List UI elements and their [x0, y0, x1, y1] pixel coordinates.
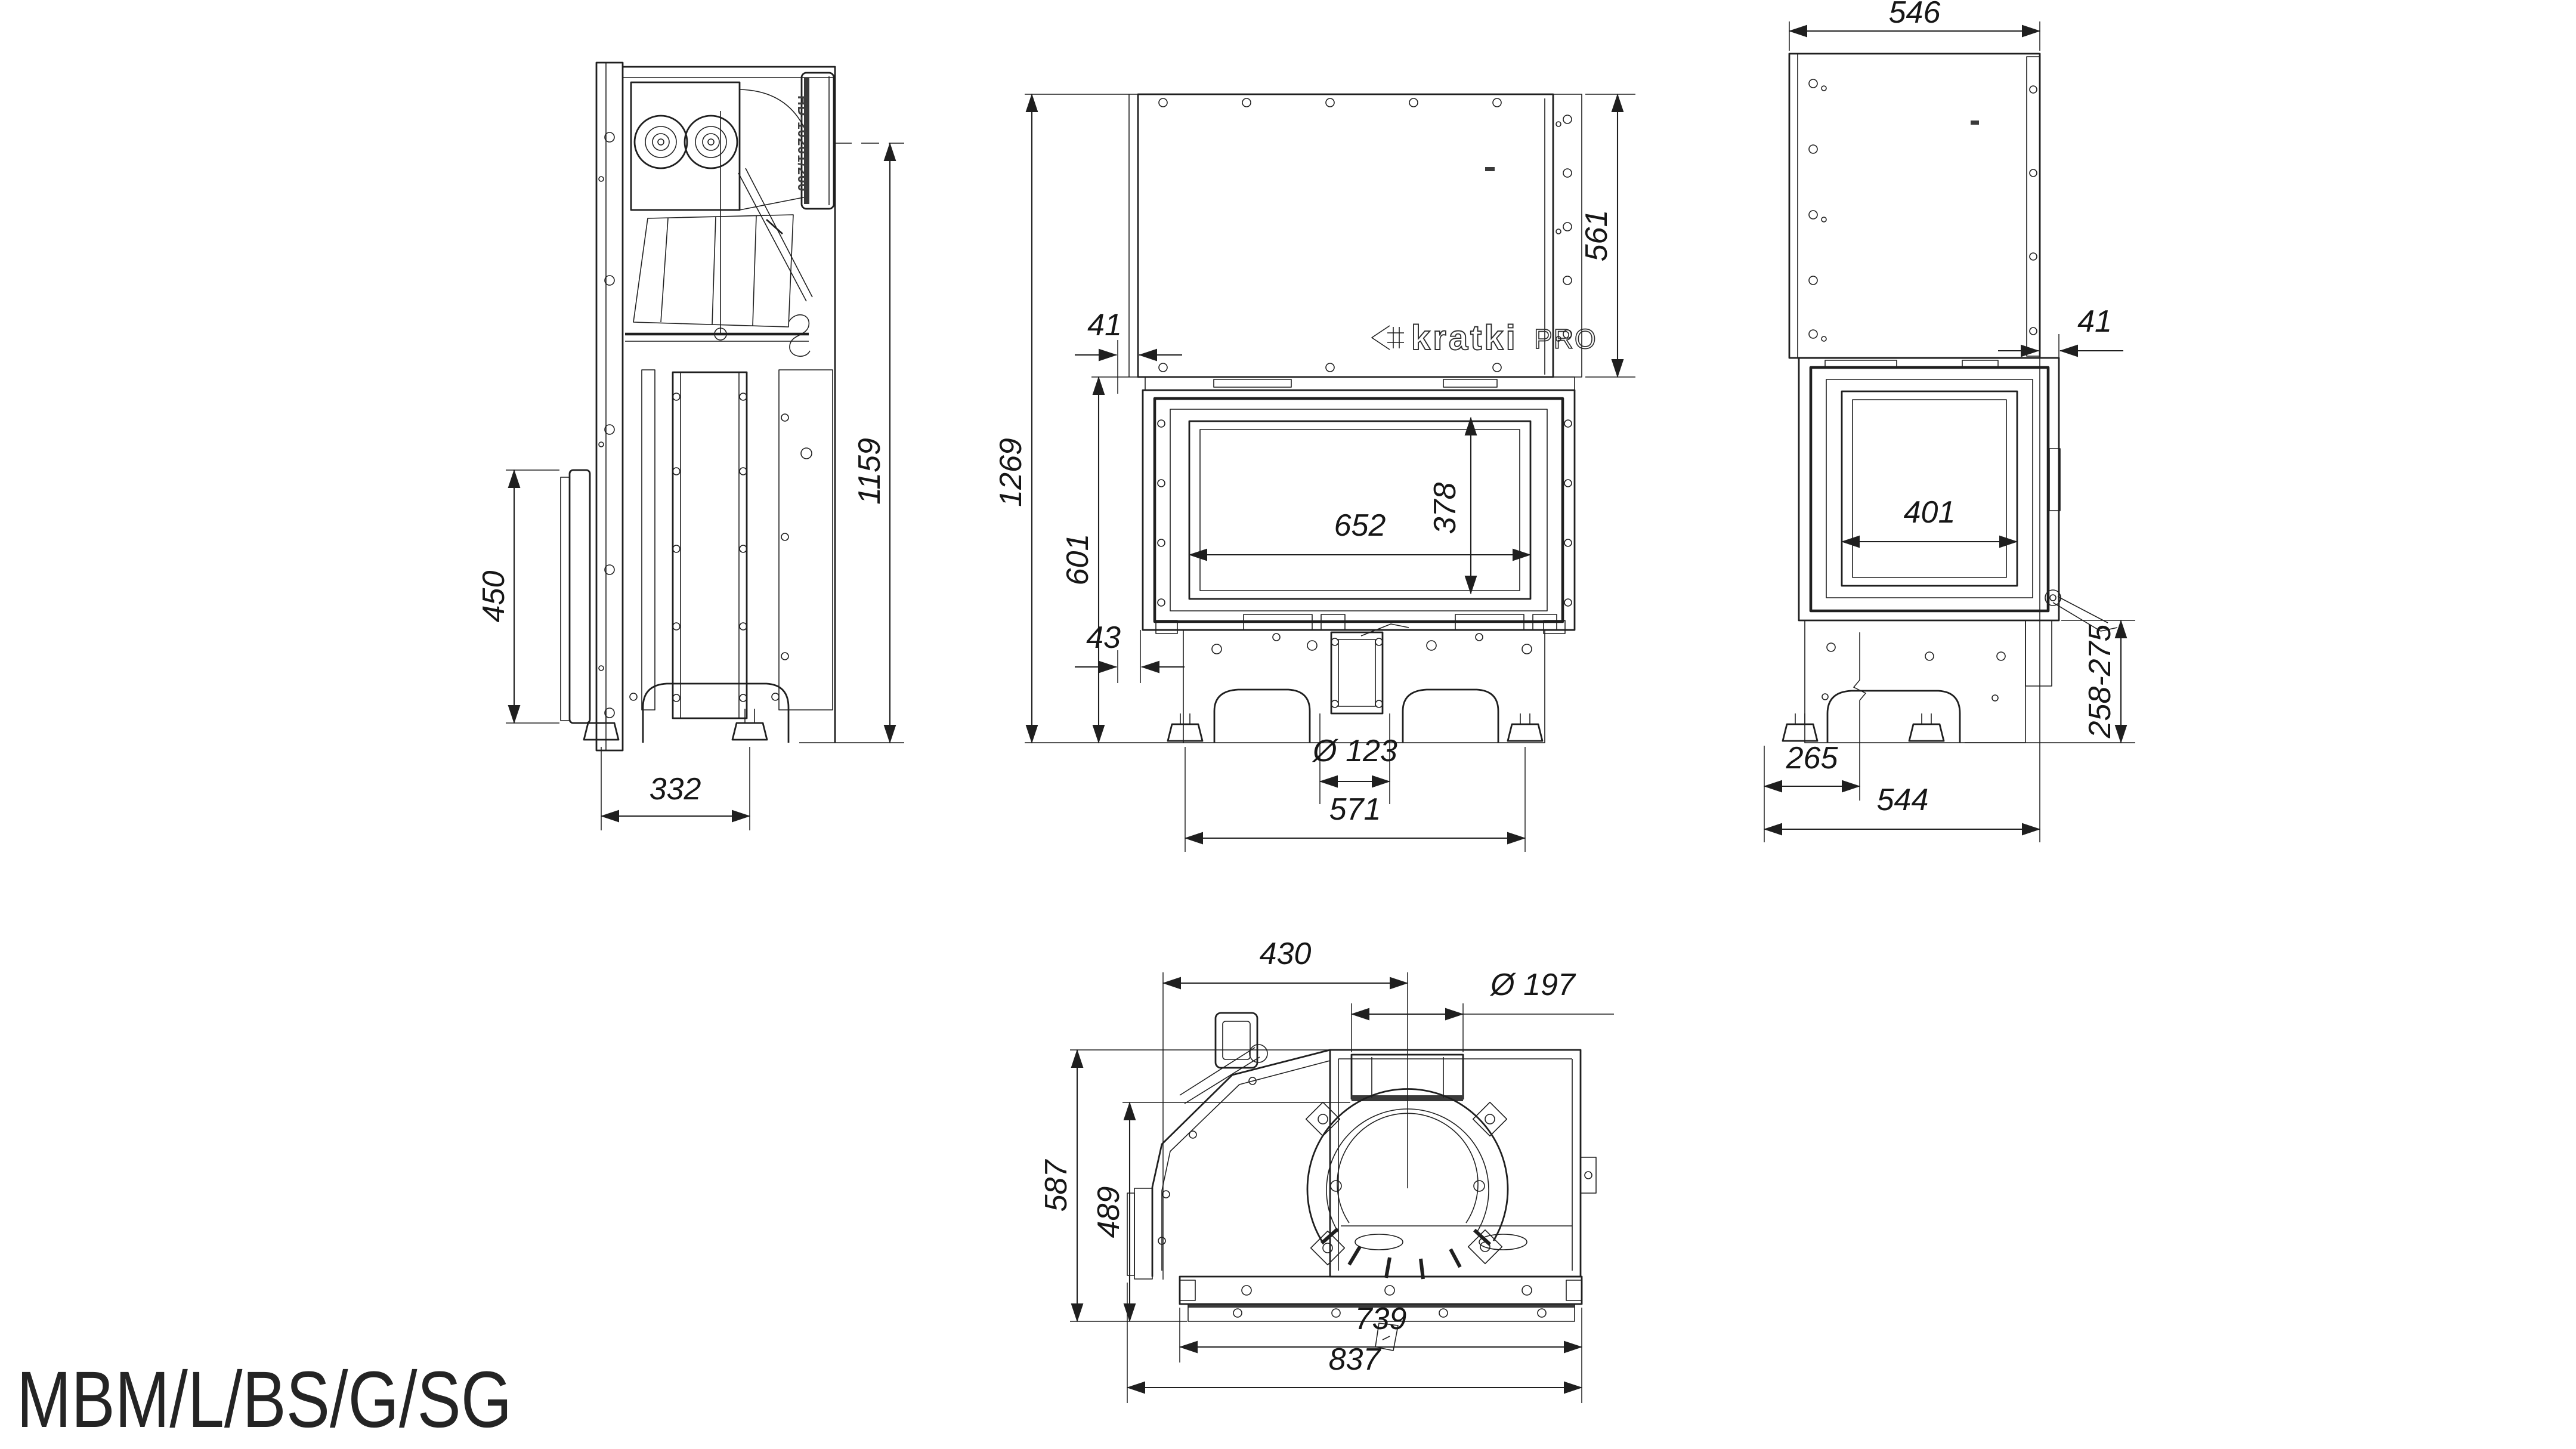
dim-front-overall-height: 1269 [994, 438, 1028, 507]
view-front: kratki PRO 652 378 [994, 94, 1635, 852]
logo-suffix-text: PRO [1534, 323, 1597, 354]
dim-top-overall-width: 837 [1329, 1342, 1382, 1377]
dim-right-base-height-range: 258-275 [2083, 624, 2117, 739]
dim-front-left-offset-bottom: 43 [1086, 620, 1121, 655]
dim-front-body-height: 601 [1060, 534, 1095, 586]
kratki-arrow-icon [1372, 326, 1404, 350]
dim-front-upper-panel-height: 561 [1579, 210, 1614, 262]
dim-front-left-offset-top: 41 [1087, 308, 1122, 342]
model-title: MBM/L/BS/G/SG [17, 1355, 512, 1444]
dim-top-flue-diameter: Ø 197 [1489, 968, 1576, 1002]
dim-top-flue-center-from-left: 430 [1260, 937, 1312, 971]
dim-front-glass-height: 378 [1428, 483, 1462, 535]
dim-top-front-bar-width: 739 [1355, 1302, 1407, 1336]
part-number-label: HD-10201/200 [795, 95, 811, 192]
dim-top-overall-depth: 587 [1039, 1159, 1074, 1212]
dim-right-depth-top: 546 [1889, 0, 1941, 30]
view-left-side: HD-10201/200 450 [477, 63, 904, 830]
dim-front-glass-width: 652 [1334, 508, 1386, 543]
view-top-plan: 430 Ø 197 587 489 739 837 [1039, 937, 1614, 1403]
dim-front-feet-spacing: 571 [1329, 792, 1381, 827]
dim-left-door-height: 450 [477, 571, 511, 623]
dim-right-front-offset-top: 41 [2077, 304, 2112, 339]
dim-top-inner-depth: 489 [1091, 1187, 1126, 1238]
dim-right-glass-width: 401 [1904, 495, 1956, 530]
dim-left-overall-height: 1159 [852, 438, 887, 505]
dim-front-flue-pipe-diameter: Ø 123 [1312, 734, 1397, 768]
fireplace-dimension-drawing: HD-10201/200 450 [0, 0, 2576, 1449]
dim-right-center-offset: 265 [1786, 741, 1839, 776]
dim-left-feet-spacing: 332 [650, 772, 701, 807]
logo-brand-text: kratki [1411, 319, 1518, 357]
technical-drawing-page: HD-10201/200 450 [0, 0, 2576, 1449]
view-right-side: 546 41 401 [1764, 0, 2135, 842]
dim-right-overall-depth: 544 [1877, 783, 1929, 817]
kratki-logo: kratki PRO [1372, 319, 1597, 357]
